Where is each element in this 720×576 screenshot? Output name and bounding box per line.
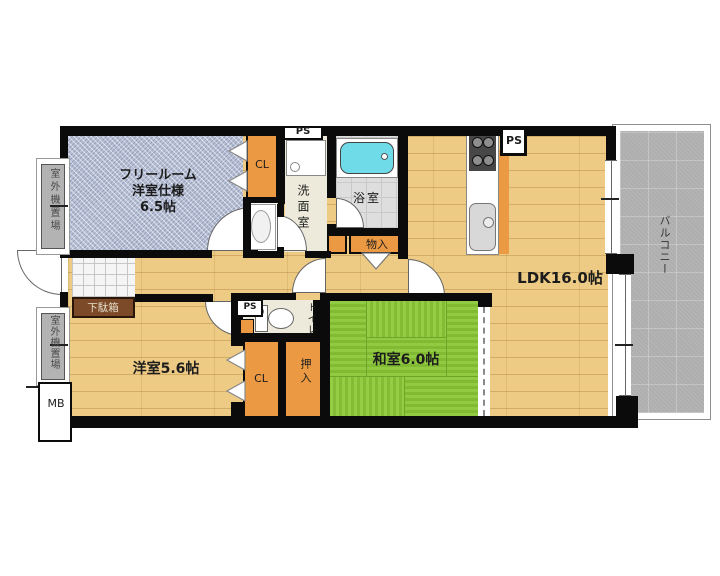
ldk-label: LDK16.0帖 bbox=[517, 267, 603, 288]
wall bbox=[478, 293, 492, 307]
floor-plan: フリールーム 洋室仕様 6.5帖 CL PS 洗面室 浴室 物入 PS LDK1… bbox=[0, 0, 720, 576]
yoshitsu-label: 洋室5.6帖 bbox=[133, 358, 200, 378]
wall bbox=[60, 126, 616, 136]
entry-door-swing bbox=[17, 250, 62, 295]
kitchen-sink bbox=[469, 203, 496, 251]
wall bbox=[398, 231, 408, 259]
wall bbox=[278, 340, 286, 418]
wall bbox=[305, 251, 331, 258]
folding-door-icon bbox=[228, 170, 248, 192]
sliding-door-line bbox=[483, 307, 485, 416]
monoire-label: 物入 bbox=[366, 236, 388, 252]
wall bbox=[606, 126, 616, 160]
tick-mark bbox=[601, 198, 619, 200]
wall bbox=[327, 228, 405, 236]
wall bbox=[398, 126, 408, 231]
wall bbox=[135, 294, 213, 302]
tatami-mat bbox=[447, 301, 480, 376]
window bbox=[619, 274, 631, 396]
tatami-mat bbox=[330, 377, 404, 416]
bathroom-label: 浴室 bbox=[353, 189, 381, 206]
burner-icon bbox=[472, 137, 483, 148]
folding-door-icon bbox=[226, 380, 246, 402]
washroom-label: 洗面室 bbox=[295, 184, 312, 232]
ps-kitchen-label: PS bbox=[506, 134, 522, 147]
wall bbox=[231, 340, 243, 346]
tatami-mat bbox=[405, 377, 480, 416]
toilet-bowl bbox=[268, 308, 294, 329]
wall bbox=[231, 402, 243, 418]
free-room-label-3: 6.5帖 bbox=[140, 196, 176, 215]
bathtub-drain-icon bbox=[381, 153, 388, 160]
wall bbox=[60, 250, 212, 258]
wall bbox=[243, 197, 285, 203]
balcony-label: バルコニー bbox=[656, 215, 672, 275]
wall bbox=[616, 396, 638, 418]
ps-toilet-label: PS bbox=[243, 302, 256, 312]
vanity-bowl-icon bbox=[290, 162, 300, 172]
wall bbox=[243, 200, 251, 258]
meter-box bbox=[38, 382, 72, 442]
shoe-cabinet-label: 下駄箱 bbox=[87, 300, 119, 315]
oshiire-label: 押入 bbox=[297, 358, 313, 386]
folding-door-icon bbox=[226, 349, 246, 371]
faucet-icon bbox=[483, 217, 494, 228]
washing-machine-tub-icon bbox=[251, 210, 271, 243]
window bbox=[605, 160, 617, 254]
wall bbox=[327, 136, 336, 198]
cl-upper-label: CL bbox=[255, 158, 269, 171]
outdoor-unit-upper-label: 室外機置場 bbox=[46, 168, 61, 233]
wall bbox=[60, 416, 638, 428]
wall bbox=[606, 254, 634, 274]
burner-icon bbox=[472, 155, 483, 166]
folding-door-icon bbox=[228, 140, 248, 162]
wall bbox=[277, 204, 284, 217]
toilet-label: トイレ bbox=[303, 302, 318, 335]
tick-mark bbox=[615, 344, 633, 346]
wall bbox=[243, 251, 279, 258]
cl-lower-label: CL bbox=[254, 372, 268, 385]
washitsu-label: 和室6.0帖 bbox=[373, 349, 440, 369]
outdoor-unit-lower-label: 室外機置場 bbox=[46, 315, 61, 370]
burner-icon bbox=[483, 137, 494, 148]
wall bbox=[320, 293, 492, 301]
kitchen-counter-edge bbox=[499, 150, 509, 254]
wall bbox=[320, 293, 330, 418]
stove bbox=[469, 134, 496, 171]
ps-toilet-chip bbox=[240, 319, 254, 334]
tick-mark bbox=[26, 386, 38, 388]
burner-icon bbox=[483, 155, 494, 166]
storage-door-icon bbox=[361, 252, 391, 270]
tatami-mat bbox=[330, 301, 366, 376]
ps-top-label: PS bbox=[296, 126, 311, 137]
meter-box-label: MB bbox=[47, 397, 64, 410]
tatami-mat bbox=[367, 301, 446, 337]
